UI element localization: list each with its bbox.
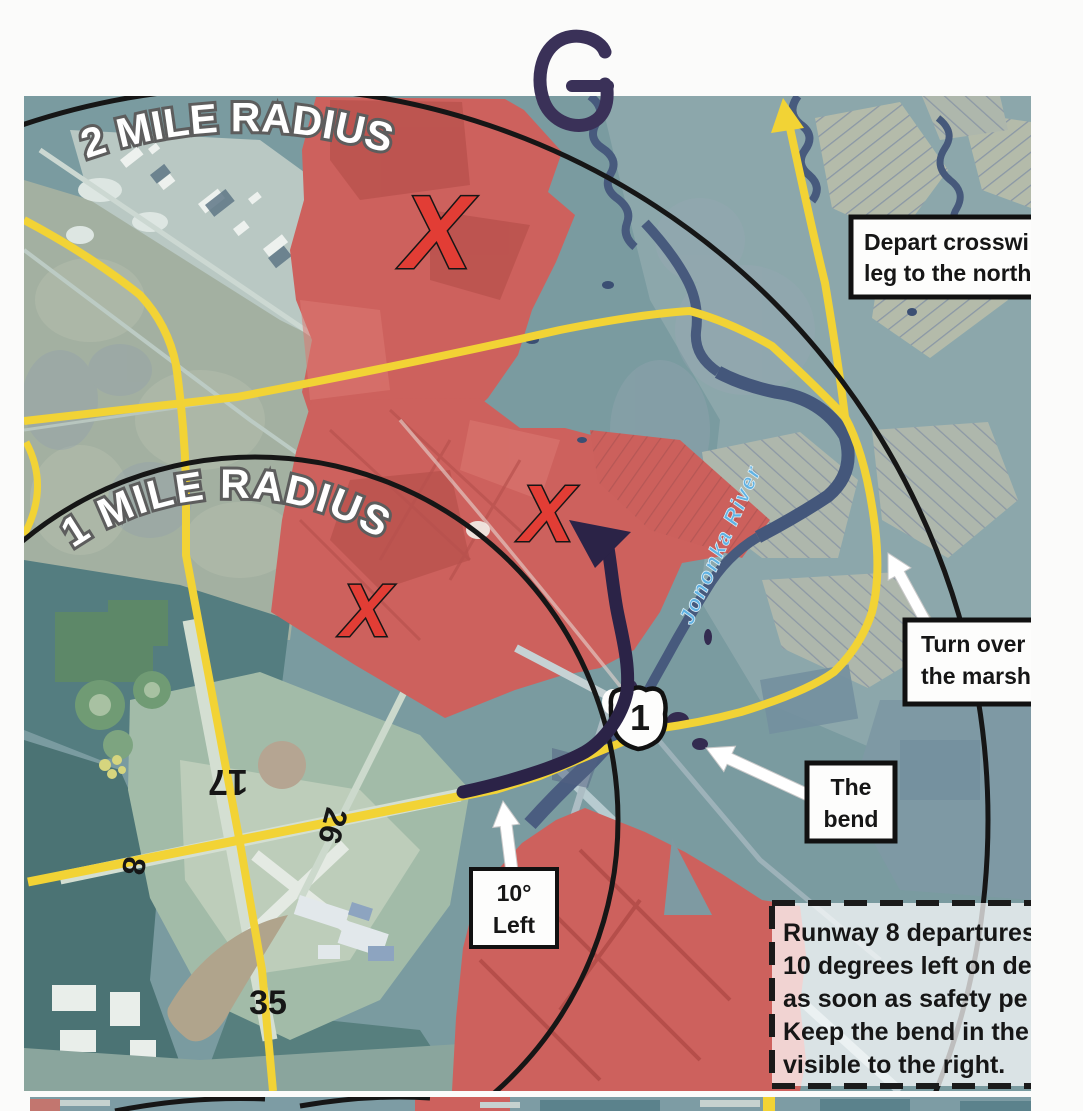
svg-text:Depart crosswi: Depart crosswi [864,229,1029,255]
svg-text:visible to the right.: visible to the right. [783,1051,1005,1079]
svg-text:1: 1 [630,697,650,738]
svg-text:Runway 8 departures: Runway 8 departures [783,919,1036,947]
svg-text:17: 17 [208,762,248,803]
svg-text:10°: 10° [497,880,532,906]
svg-text:Turn over: Turn over [921,631,1025,657]
svg-text:as soon as safety pe: as soon as safety pe [783,985,1028,1013]
svg-text:Keep the bend in the: Keep the bend in the [783,1018,1029,1046]
svg-text:X: X [516,469,578,558]
svg-text:35: 35 [249,984,287,1022]
svg-text:leg to the north: leg to the north [864,260,1031,286]
svg-text:the marsh: the marsh [921,663,1031,689]
svg-text:X: X [337,569,395,652]
svg-text:X: X [397,175,477,291]
svg-text:Left: Left [493,912,536,938]
svg-text:The: The [831,774,872,800]
svg-text:10 degrees left on de: 10 degrees left on de [783,952,1032,980]
svg-text:bend: bend [824,806,879,832]
